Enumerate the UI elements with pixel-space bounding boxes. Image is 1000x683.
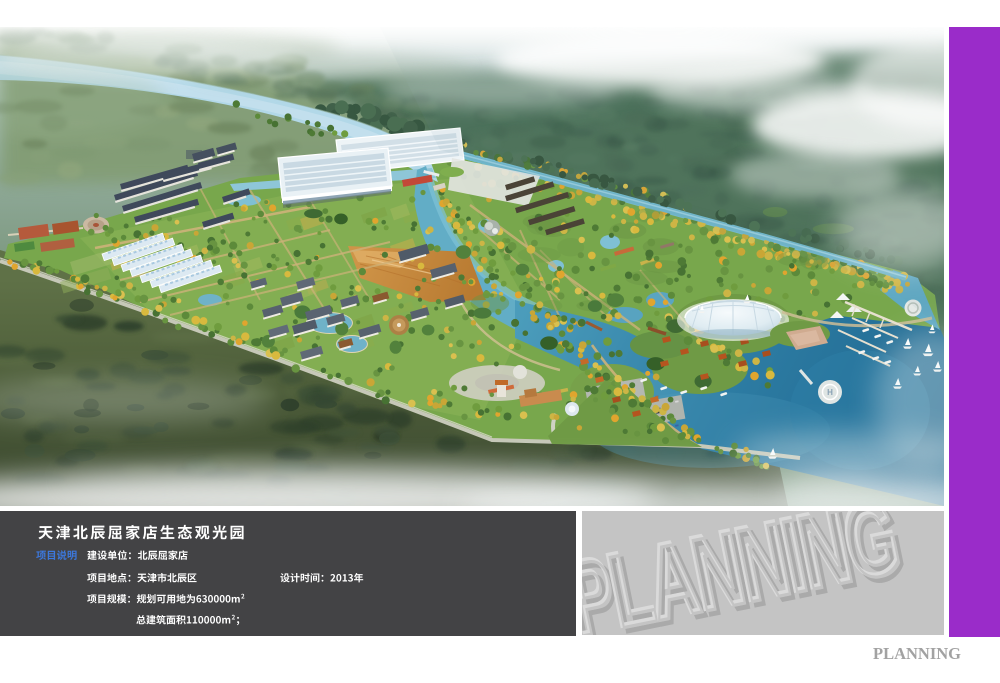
- svg-text:H: H: [827, 388, 833, 397]
